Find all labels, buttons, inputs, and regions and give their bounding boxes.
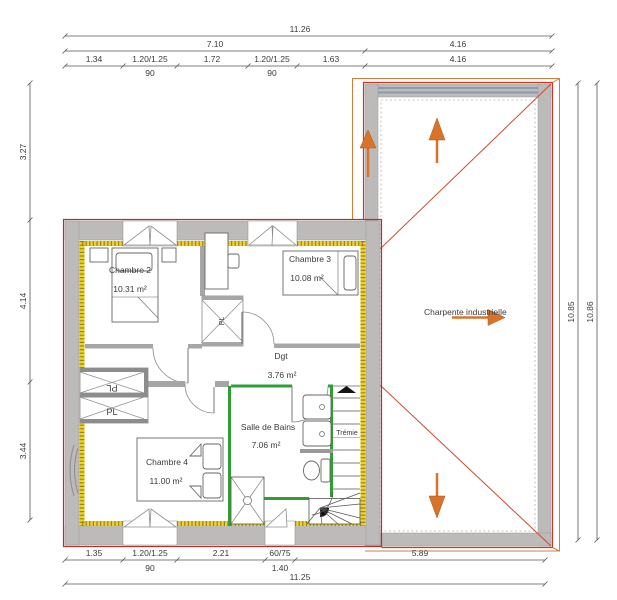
bathroom-vanity bbox=[300, 395, 333, 453]
nightstand-right bbox=[162, 248, 176, 262]
dim-seg: 2.21 bbox=[213, 548, 230, 558]
label-chambre3-area: 10.08 m² bbox=[290, 273, 324, 283]
stair-winder bbox=[307, 492, 360, 524]
closet-middle: PL bbox=[202, 296, 243, 346]
label-dgt-area: 3.76 m² bbox=[268, 370, 297, 380]
label-sdb: Salle de Bains bbox=[241, 422, 295, 432]
charpente-label: Charpente industrielle bbox=[424, 307, 507, 317]
dim-sill: 90 bbox=[267, 68, 277, 78]
stair-direction-marker bbox=[337, 386, 356, 393]
door-arc-chambre4 bbox=[185, 384, 214, 413]
dim-seg: 1.20/1.25 bbox=[132, 54, 168, 64]
nightstand-left bbox=[90, 248, 108, 262]
door-arc-chambre3 bbox=[242, 312, 274, 344]
window-north-1 bbox=[123, 221, 177, 246]
dimension-labels-bottom: 1.35 1.20/1.25 2.21 60/75 5.89 90 1.40 1… bbox=[86, 548, 429, 582]
closet-lower-label: PL bbox=[106, 407, 117, 417]
bed-chambre4 bbox=[137, 438, 223, 501]
dim-seg: 1.35 bbox=[86, 548, 103, 558]
dim-seg: 4.16 bbox=[450, 54, 467, 64]
label-sdb-area: 7.06 m² bbox=[252, 440, 281, 450]
dim-seg: 1.34 bbox=[86, 54, 103, 64]
dim-seg: 5.89 bbox=[412, 548, 429, 558]
label-chambre3: Chambre 3 bbox=[289, 254, 331, 264]
wall-east bbox=[366, 221, 380, 545]
dim-seg: 1.20/1.25 bbox=[254, 54, 290, 64]
dim-seg: 1.72 bbox=[204, 54, 221, 64]
dim-span-left: 7.10 bbox=[207, 39, 224, 49]
wall-c2-c3 bbox=[200, 246, 205, 296]
dim-span-right: 4.16 bbox=[450, 39, 467, 49]
closet-middle-label: PL bbox=[219, 317, 226, 326]
tremie-label: Trémie bbox=[336, 430, 358, 437]
wall-west bbox=[65, 221, 79, 545]
wall-south bbox=[65, 527, 380, 546]
dim-left: 3.27 bbox=[18, 143, 28, 160]
chair bbox=[228, 254, 239, 268]
floor-plan-drawing: 11.26 7.10 4.16 1.34 1.20/1.25 1.72 1.20… bbox=[0, 0, 617, 600]
dim-window-height: 1.40 bbox=[272, 563, 289, 573]
toilet bbox=[304, 459, 331, 482]
wall-c2-south-a bbox=[85, 344, 153, 349]
label-dgt: Dgt bbox=[274, 351, 288, 361]
window-south-1 bbox=[123, 509, 177, 545]
window-north-2 bbox=[248, 221, 297, 246]
dimension-lines-left bbox=[28, 81, 33, 523]
label-chambre4-area: 11.00 m² bbox=[150, 476, 183, 486]
dimension-labels-right: 10.85 10.86 bbox=[566, 301, 595, 323]
floor-plan-page: 11.26 7.10 4.16 1.34 1.20/1.25 1.72 1.20… bbox=[0, 0, 617, 600]
dim-seg: 1.20/1.25 bbox=[132, 548, 168, 558]
dim-right: 10.86 bbox=[585, 301, 595, 323]
closet-upper-label: PL bbox=[106, 383, 117, 393]
closet-pl-lower: PL bbox=[80, 393, 148, 423]
dim-left: 4.14 bbox=[18, 292, 28, 309]
shower bbox=[231, 477, 264, 524]
label-chambre2: Chambre 2 bbox=[109, 265, 151, 275]
window-south-2 bbox=[265, 509, 295, 545]
door-arc-chambre2 bbox=[153, 348, 188, 383]
dim-right: 10.85 bbox=[566, 301, 576, 323]
wall-dgt-south-b bbox=[215, 381, 229, 387]
charpente-section: Charpente industrielle bbox=[353, 79, 560, 552]
label-chambre4: Chambre 4 bbox=[146, 457, 188, 467]
dimension-labels-left: 3.27 4.14 3.44 bbox=[18, 143, 28, 459]
wall-c2-south-b bbox=[188, 344, 202, 349]
dim-seg: 60/75 bbox=[269, 548, 291, 558]
dim-sill: 90 bbox=[145, 68, 155, 78]
dim-total-top: 11.26 bbox=[290, 24, 311, 34]
dim-total-bottom: 11.25 bbox=[290, 572, 311, 582]
dim-left: 3.44 bbox=[18, 442, 28, 459]
wall-c3-south bbox=[274, 344, 360, 349]
dim-sill: 90 bbox=[145, 563, 155, 573]
wall-dgt-south-a bbox=[148, 381, 185, 387]
arrow-up-head bbox=[429, 118, 445, 140]
label-chambre2-area: 10.31 m² bbox=[113, 284, 147, 294]
dim-seg: 1.63 bbox=[323, 54, 340, 64]
arrow-down-head bbox=[429, 496, 445, 518]
